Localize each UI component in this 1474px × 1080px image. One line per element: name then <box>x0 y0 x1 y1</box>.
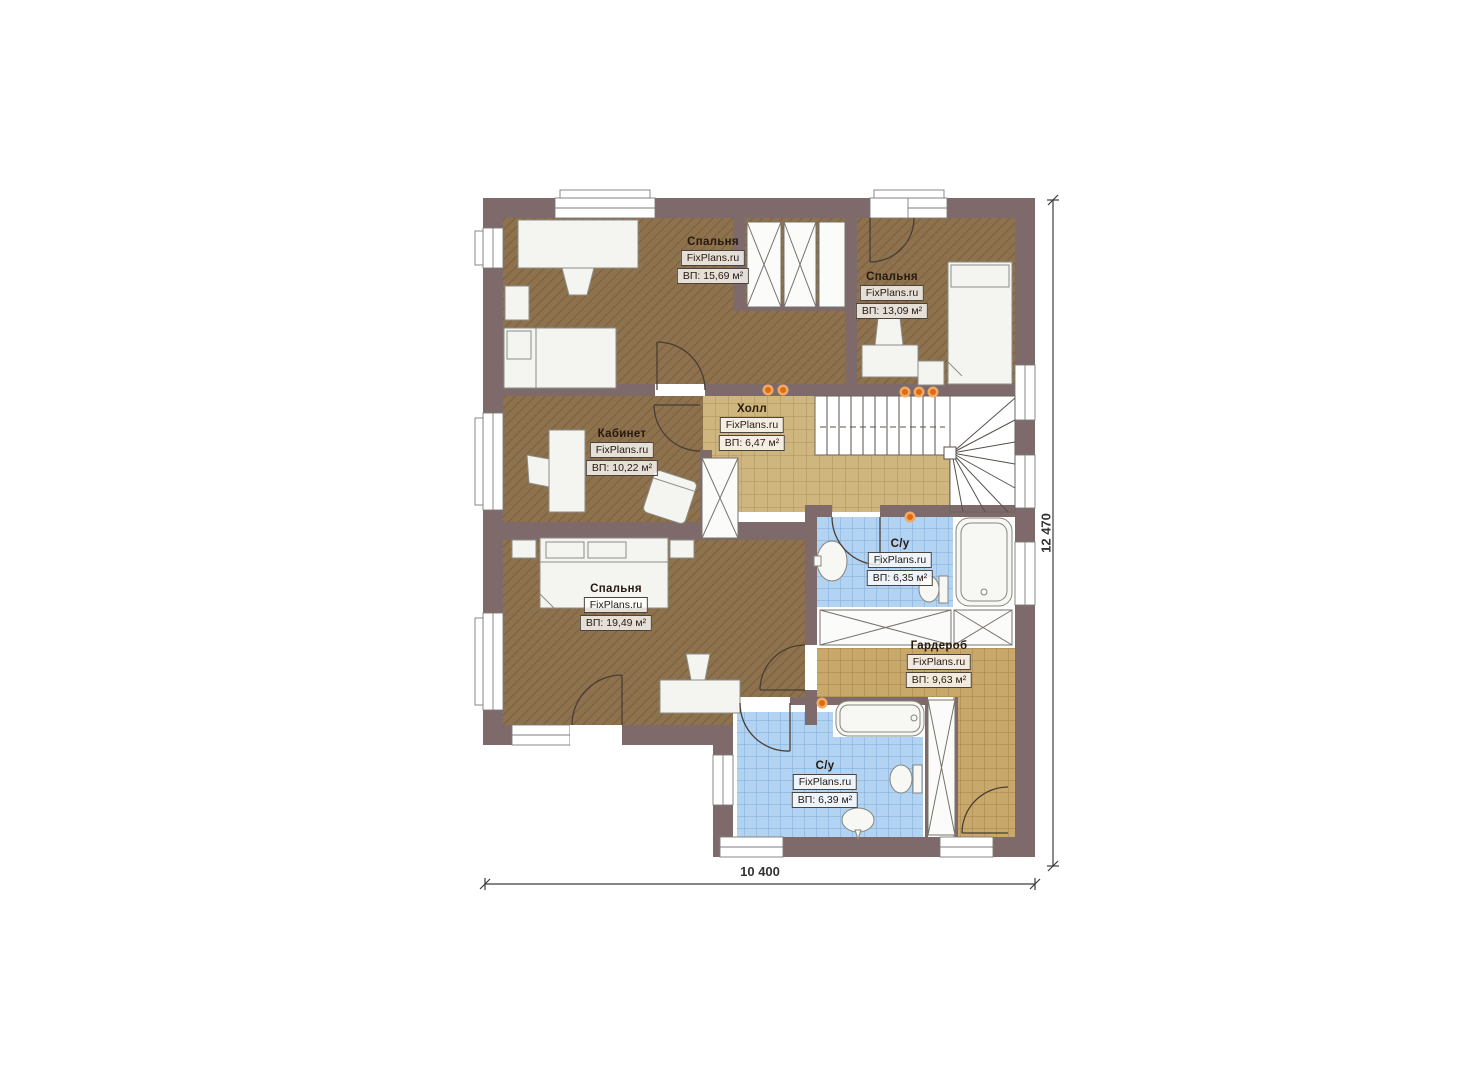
bathroom1-tub <box>956 518 1012 606</box>
wall-closet-left <box>733 218 745 311</box>
wardrobe-floor-top <box>817 648 1015 697</box>
window-bottom-wardrobe <box>940 837 993 857</box>
wall-bedroom3-right-b <box>805 690 817 725</box>
bathroom1-tap <box>814 556 821 566</box>
wall-bedrooms-2 <box>705 384 1015 396</box>
window-right-stairs-1 <box>1015 365 1035 420</box>
wardrobe-floor-side <box>953 697 1015 837</box>
wall-bedroom2-left <box>845 218 857 384</box>
wall-bedroom3-right-a <box>805 512 817 645</box>
closet-band-right <box>954 610 1012 645</box>
window-left-bedroom3 <box>475 613 503 710</box>
wall-corridor-bath-b <box>880 505 1015 517</box>
bedroom3-nightstand-right <box>670 540 694 558</box>
bedroom2-side-table <box>918 361 944 385</box>
window-left-bedroom1 <box>475 228 503 268</box>
window-left-bathroom2 <box>713 755 733 805</box>
window-left-office <box>475 413 503 510</box>
light-dot <box>763 385 774 396</box>
closet-office <box>702 458 738 538</box>
floor-plan-page: Спальня FixPlans.ru ВП: 15,69 м² Спальня… <box>0 0 1474 1080</box>
window-top-bedroom2 <box>870 190 947 218</box>
bedroom2-bed <box>948 262 1012 384</box>
dimension-width: 10 400 <box>740 864 780 879</box>
window-top-bedroom1 <box>555 190 655 218</box>
wall-right <box>1015 198 1035 857</box>
window-right-bathroom1 <box>1015 542 1035 605</box>
light-dot <box>928 387 939 398</box>
bedroom3-nightstand-left <box>512 540 536 558</box>
window-right-stairs-2 <box>1015 455 1035 508</box>
bedroom2-chair <box>875 318 903 345</box>
window-bottom-bathroom2 <box>720 837 783 857</box>
light-dot <box>900 387 911 398</box>
window-bottom-bedroom3 <box>512 725 622 745</box>
bathroom1-toilet <box>919 576 948 603</box>
light-dot <box>778 385 789 396</box>
bedroom1-nightstand <box>505 286 529 320</box>
wall-bedroom3-top <box>503 522 817 540</box>
stair-newel <box>944 447 956 459</box>
bedroom1-bed <box>504 328 616 388</box>
stair-flight <box>815 396 950 455</box>
bathroom2-tub <box>836 701 924 736</box>
light-dot <box>817 698 828 709</box>
closet-top-2 <box>784 222 816 307</box>
dimension-line-bottom <box>480 878 1040 890</box>
floor-plan-drawing <box>0 0 1474 1080</box>
closet-top-1 <box>747 222 781 307</box>
bathroom2-toilet <box>890 765 922 793</box>
closet-band-left <box>820 610 951 645</box>
closet-niche <box>819 222 845 307</box>
light-dot <box>914 387 925 398</box>
light-dot <box>905 512 916 523</box>
dimension-height: 12 470 <box>1039 513 1054 553</box>
closet-bathroom2 <box>928 700 955 835</box>
office-chair <box>527 455 549 487</box>
